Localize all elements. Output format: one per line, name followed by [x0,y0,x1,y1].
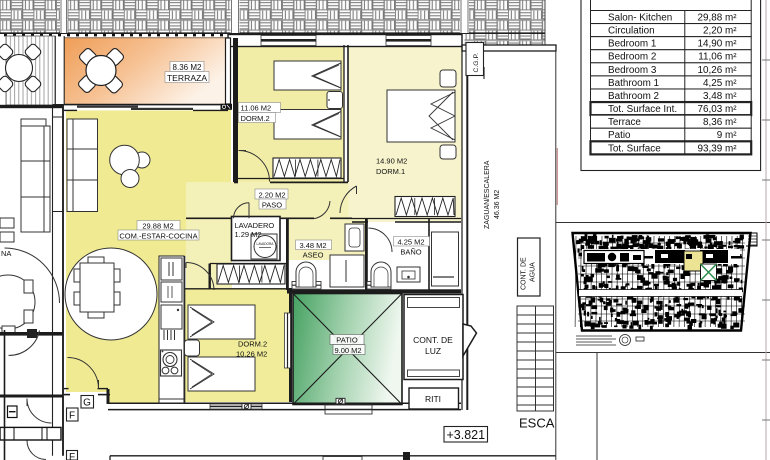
svg-text:LUZ: LUZ [425,346,441,356]
svg-text:CONT. DE: CONT. DE [413,335,453,345]
svg-text:11.06 M2: 11.06 M2 [241,104,272,113]
svg-text:Tot. Surface Int.: Tot. Surface Int. [608,104,677,115]
svg-text:29.88 M2: 29.88 M2 [142,222,173,231]
svg-text:76,03 m²: 76,03 m² [698,104,738,115]
svg-text:8,36 m²: 8,36 m² [703,117,737,128]
svg-text:46.36 M2: 46.36 M2 [494,190,501,219]
svg-text:AGUA: AGUA [530,262,537,282]
svg-text:Terrace: Terrace [608,117,641,128]
svg-text:Salon- Kitchen: Salon- Kitchen [608,13,672,24]
svg-text:2,20 m²: 2,20 m² [703,26,737,37]
svg-text:Circulation: Circulation [608,26,655,37]
svg-text:DORM.2: DORM.2 [241,114,270,123]
svg-text:PATIO: PATIO [336,336,358,345]
svg-text:14.90 M2: 14.90 M2 [376,157,407,166]
svg-text:93,39 m²: 93,39 m² [698,143,738,154]
svg-text:14,90 m²: 14,90 m² [698,39,738,50]
svg-text:LAVADORA: LAVADORA [257,242,275,246]
svg-text:9.00 M2: 9.00 M2 [334,346,361,355]
svg-text:DORM.1: DORM.1 [376,167,405,176]
svg-text:Bathroom 2: Bathroom 2 [608,91,659,102]
svg-text:Bedroom 1: Bedroom 1 [608,39,657,50]
svg-text:4.25 M2: 4.25 M2 [397,238,424,247]
svg-text:ESCA: ESCA [519,416,555,431]
svg-text:11,06 m²: 11,06 m² [698,52,737,63]
svg-text:1.29 M2: 1.29 M2 [235,230,262,239]
svg-text:F: F [69,411,75,422]
svg-text:COM.-ESTAR-COCINA: COM.-ESTAR-COCINA [119,232,197,241]
svg-text:C.G.P.: C.G.P. [473,53,480,73]
svg-text:3,48 m²: 3,48 m² [703,91,737,102]
svg-text:10,26 m²: 10,26 m² [698,65,738,76]
svg-text:G: G [83,398,91,409]
svg-text:TERRAZA: TERRAZA [167,73,207,83]
svg-text:9 m²: 9 m² [717,130,737,141]
svg-text:F: F [69,452,75,460]
svg-text:2.20 M2: 2.20 M2 [258,191,285,200]
svg-text:Bedroom 3: Bedroom 3 [608,65,657,76]
svg-text:ASEO: ASEO [303,251,324,260]
svg-text:DORM.2: DORM.2 [238,340,267,349]
svg-text:ZAGUAN/ESCALERA: ZAGUAN/ESCALERA [484,160,491,229]
svg-text:4,25 m²: 4,25 m² [703,78,737,89]
svg-text:8.36 M2: 8.36 M2 [173,63,202,72]
svg-text:RITI: RITI [425,394,441,404]
svg-text:+3.821: +3.821 [447,428,486,442]
svg-text:NA: NA [1,249,11,258]
svg-text:Bathroom 1: Bathroom 1 [608,78,660,89]
svg-text:BAÑO: BAÑO [400,248,421,257]
svg-text:CONT. DE: CONT. DE [521,257,528,290]
svg-text:Patio: Patio [608,130,631,141]
svg-text:29,88 m²: 29,88 m² [698,13,738,24]
svg-text:PASO: PASO [262,201,282,210]
svg-text:Bedroom 2: Bedroom 2 [608,52,656,63]
svg-text:10.26 M2: 10.26 M2 [236,350,267,359]
svg-text:LAVADERO: LAVADERO [235,221,275,230]
svg-text:Tot. Surface: Tot. Surface [608,143,661,154]
svg-text:3.48 M2: 3.48 M2 [299,241,326,250]
